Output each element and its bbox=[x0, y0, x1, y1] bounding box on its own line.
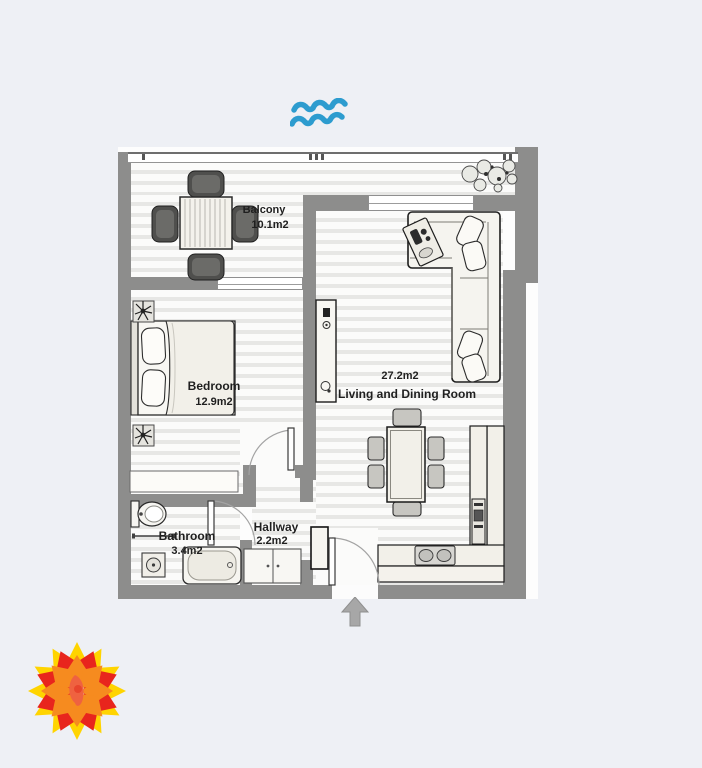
bathroom-label: Bathroom bbox=[147, 530, 227, 543]
plant-icon bbox=[133, 425, 154, 446]
floor-plan: Balcony 10.1m2 Bedroom 12.9m2 Bathroom 3… bbox=[118, 147, 538, 599]
sofa bbox=[402, 212, 500, 383]
hallway-cabinet bbox=[244, 549, 301, 583]
balcony-area: 10.1m2 bbox=[230, 219, 310, 232]
hallway-area: 2.2m2 bbox=[232, 535, 312, 548]
bedroom-shelf bbox=[130, 471, 238, 492]
dining-table bbox=[387, 427, 425, 502]
plant-icon bbox=[133, 301, 154, 322]
living-room-area: 27.2m2 bbox=[360, 370, 440, 383]
hallway-label: Hallway bbox=[236, 521, 316, 534]
railing-posts bbox=[142, 154, 512, 160]
dining-table-set bbox=[368, 409, 444, 516]
tv-unit bbox=[316, 300, 336, 402]
oven bbox=[472, 499, 485, 544]
floor-plan-page: Balcony 10.1m2 Bedroom 12.9m2 Bathroom 3… bbox=[0, 0, 702, 768]
bedroom-label: Bedroom bbox=[174, 380, 254, 393]
bathroom-area: 3.4m2 bbox=[147, 545, 227, 558]
balcony-label: Balcony bbox=[224, 204, 304, 217]
living-room-label: Living and Dining Room bbox=[337, 388, 477, 401]
water-waves-icon bbox=[290, 98, 352, 136]
bedroom-area: 12.9m2 bbox=[174, 396, 254, 409]
stove bbox=[415, 546, 455, 565]
plant-icon bbox=[462, 160, 517, 192]
toilet bbox=[131, 501, 166, 527]
entry-direction-arrow-icon bbox=[341, 597, 371, 629]
flower-logo bbox=[26, 640, 128, 742]
entrance-door bbox=[329, 538, 379, 585]
bedroom-door bbox=[249, 428, 294, 475]
